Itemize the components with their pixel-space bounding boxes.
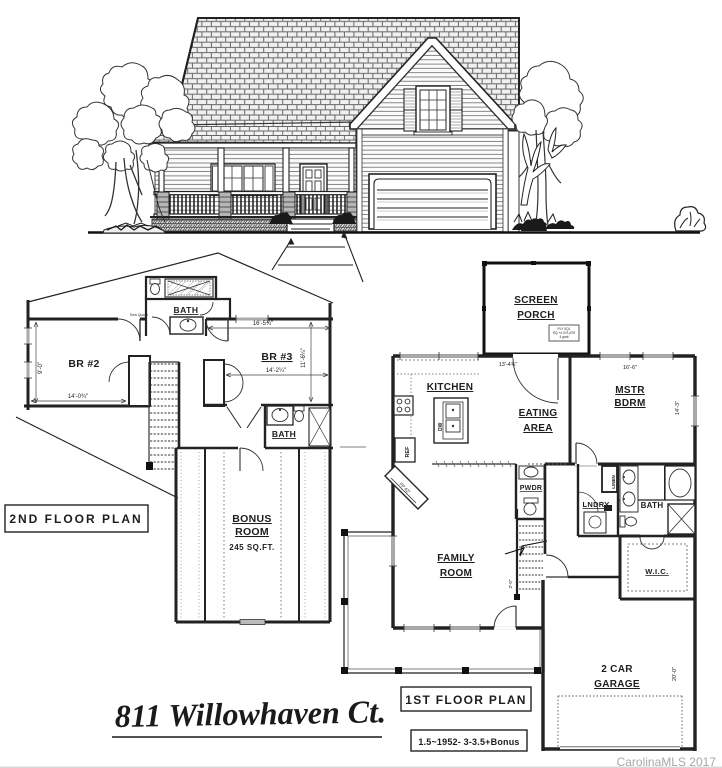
- svg-text:BATH: BATH: [174, 305, 199, 315]
- svg-text:ROOM: ROOM: [440, 568, 472, 579]
- svg-text:16'-6": 16'-6": [623, 365, 637, 371]
- svg-text:9'-0": 9'-0": [38, 362, 44, 374]
- svg-text:DW: DW: [438, 422, 444, 431]
- svg-text:SCREEN: SCREEN: [514, 295, 557, 306]
- svg-text:1.5~1952- 3-3.5+Bonus: 1.5~1952- 3-3.5+Bonus: [418, 737, 519, 747]
- svg-text:14'-0¾": 14'-0¾": [68, 394, 88, 400]
- svg-text:11'-6¼": 11'-6¼": [301, 348, 307, 368]
- svg-text:REF: REF: [405, 446, 411, 458]
- svg-text:BATH: BATH: [641, 501, 664, 510]
- svg-text:13'-4¾": 13'-4¾": [499, 362, 518, 368]
- svg-text:MSTR: MSTR: [615, 385, 645, 396]
- svg-text:BDRM: BDRM: [614, 398, 645, 409]
- svg-text:BONUS: BONUS: [232, 513, 271, 525]
- svg-text:PORCH: PORCH: [517, 310, 555, 321]
- svg-text:ROOM: ROOM: [235, 526, 269, 538]
- svg-text:3'-0": 3'-0": [508, 579, 513, 588]
- svg-text:1ST FLOOR PLAN: 1ST FLOOR PLAN: [405, 693, 527, 707]
- svg-text:14'-2¼": 14'-2¼": [266, 368, 286, 374]
- svg-text:245 SQ.FT.: 245 SQ.FT.: [229, 543, 274, 552]
- svg-text:LINEN: LINEN: [611, 475, 616, 489]
- svg-text:811 Willowhaven Ct.: 811 Willowhaven Ct.: [114, 693, 386, 734]
- svg-text:PWDR: PWDR: [520, 485, 543, 492]
- svg-text:2ND FLOOR PLAN: 2ND FLOOR PLAN: [9, 512, 142, 526]
- svg-text:2 CAR: 2 CAR: [601, 664, 633, 675]
- svg-text:EATING: EATING: [519, 408, 558, 419]
- svg-text:4 grab: 4 grab: [559, 335, 568, 339]
- svg-text:KITCHEN: KITCHEN: [427, 382, 474, 393]
- svg-text:FAMILY: FAMILY: [437, 553, 475, 564]
- svg-text:AREA: AREA: [523, 423, 553, 434]
- svg-text:CarolinaMLS 2017: CarolinaMLS 2017: [617, 755, 717, 768]
- svg-text:BR #2: BR #2: [68, 358, 99, 370]
- svg-text:14'-3": 14'-3": [675, 401, 681, 415]
- svg-text:BATH: BATH: [272, 429, 296, 439]
- svg-text:W.I.C.: W.I.C.: [645, 567, 668, 576]
- svg-text:BR #3: BR #3: [261, 351, 292, 363]
- svg-text:20'-0": 20'-0": [672, 667, 678, 681]
- svg-text:GARAGE: GARAGE: [594, 679, 640, 690]
- svg-text:16'-5¾": 16'-5¾": [253, 321, 273, 327]
